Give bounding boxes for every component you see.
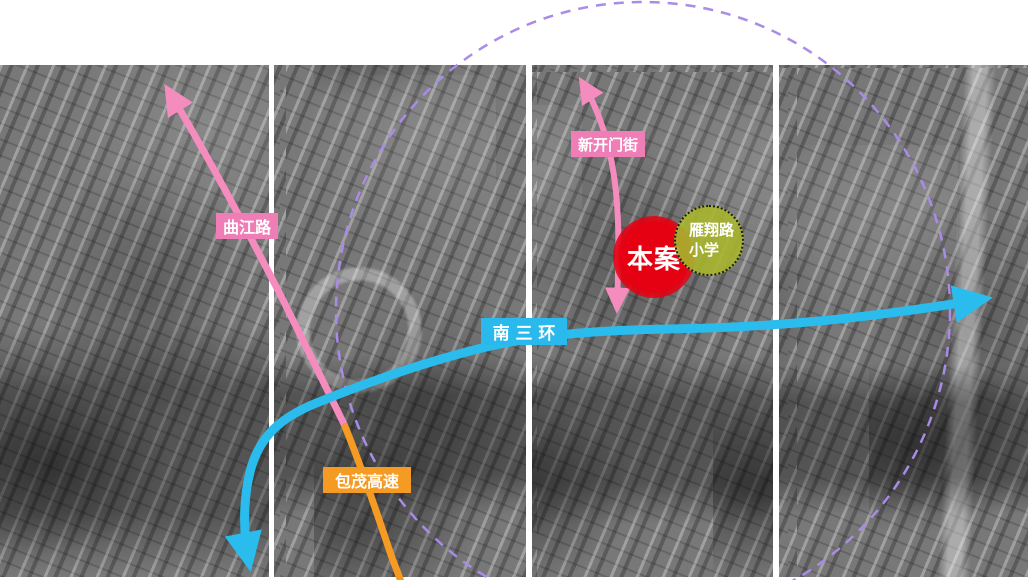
xinkaimen-road-label: 新开门街 [571,131,645,157]
school-marker: 雁翔路 小学 [674,205,744,276]
map-texture [294,265,424,395]
map-tile [532,65,773,577]
qujiang-road-label: 曲江路 [216,213,278,239]
school-marker-label-line2: 小学 [689,241,742,261]
nansanhuan-road-label: 南 三 环 [481,318,567,345]
map-texture [532,355,773,525]
map-texture [0,325,269,575]
site-location-map: 曲江路 新开门街 南 三 环 包茂高速 本案 雁翔路 小学 [0,0,1028,580]
school-marker-label-line1: 雁翔路 [689,221,742,241]
map-texture [779,365,1028,515]
map-tile [779,65,1028,577]
map-texture [938,65,997,577]
site-marker-label: 本案 [627,239,681,276]
map-tile [0,65,269,577]
baomao-road-label: 包茂高速 [323,467,411,493]
